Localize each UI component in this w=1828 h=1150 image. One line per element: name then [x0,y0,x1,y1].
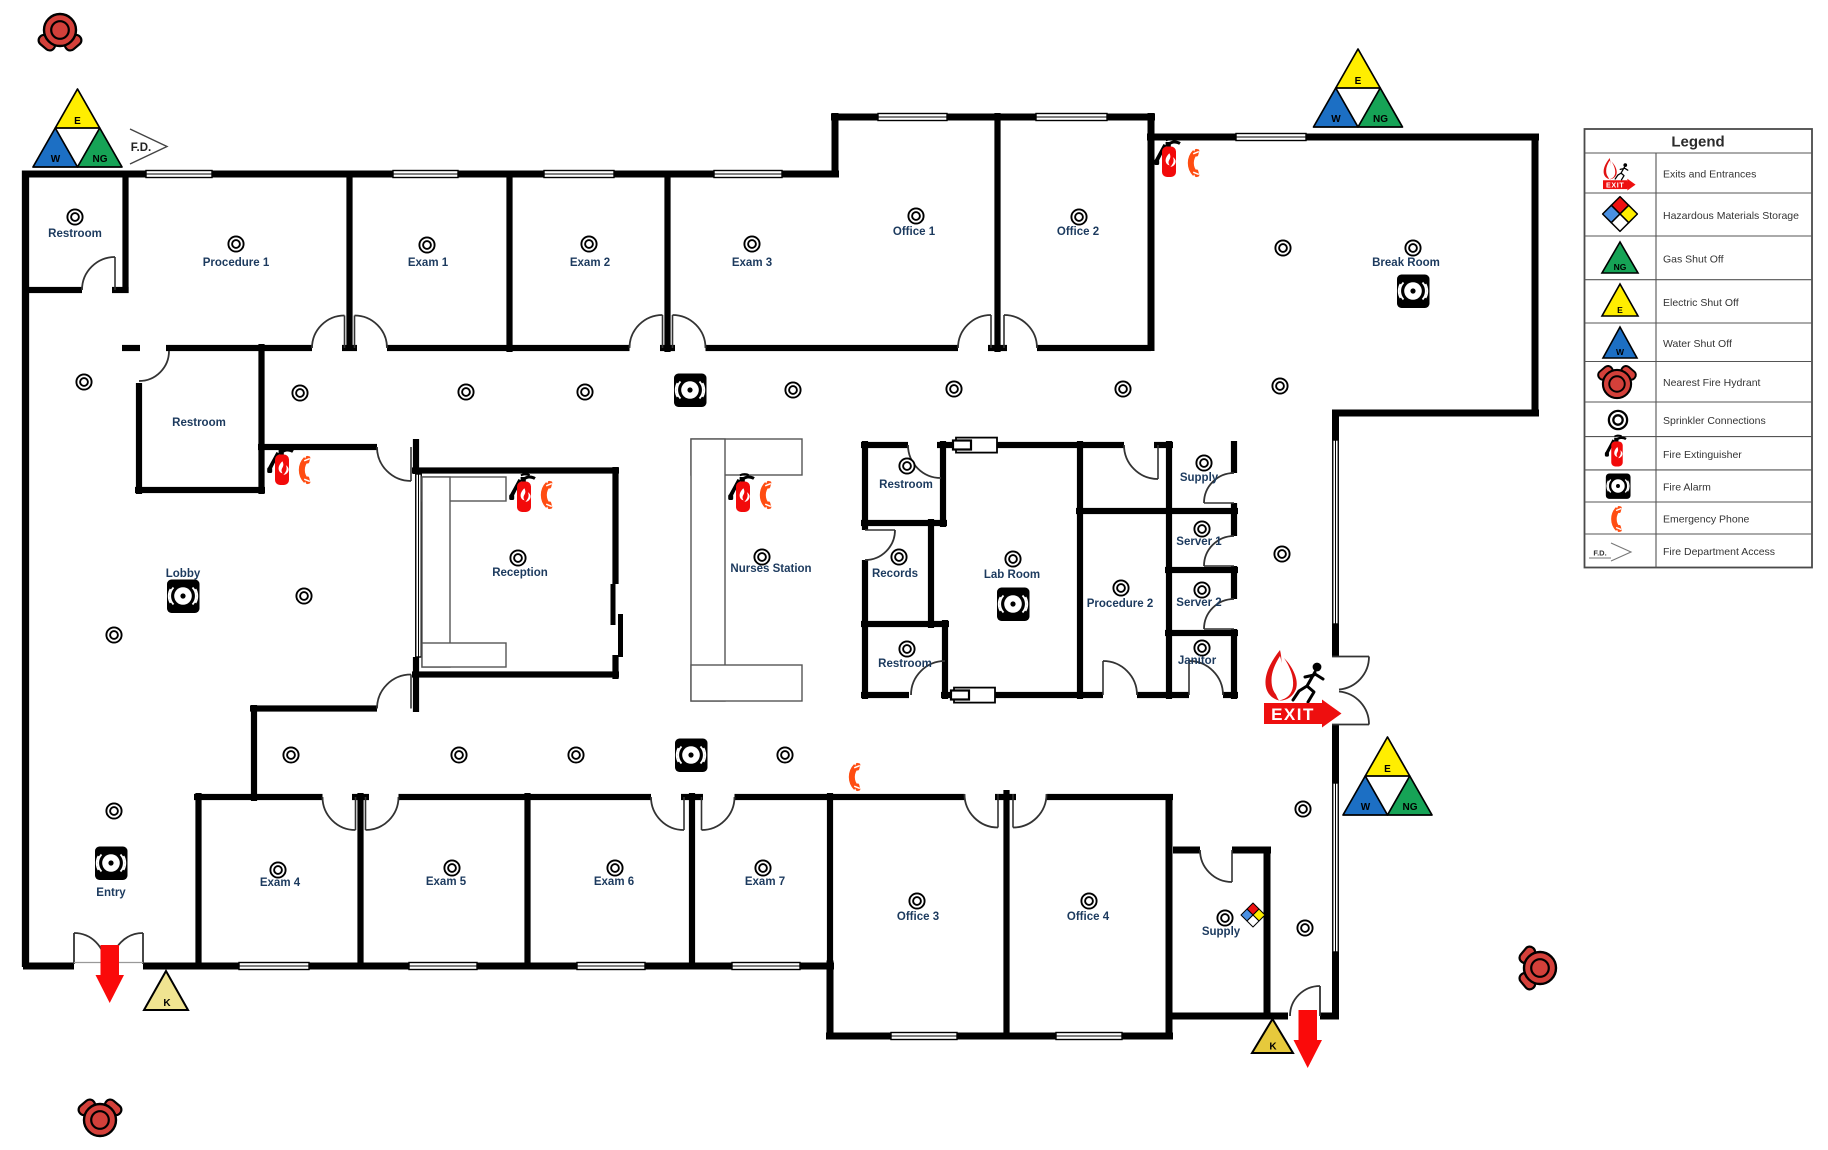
svg-text:Exam 1: Exam 1 [408,257,449,269]
svg-text:K: K [163,998,171,1009]
svg-text:Entry: Entry [96,887,126,899]
svg-text:Break Room: Break Room [1372,257,1440,269]
svg-text:Exam 4: Exam 4 [260,877,301,889]
svg-text:Exits and Entrances: Exits and Entrances [1663,169,1756,181]
svg-text:Records: Records [872,568,918,580]
svg-text:Restroom: Restroom [172,417,226,429]
svg-text:Procedure 2: Procedure 2 [1087,598,1153,610]
svg-text:Legend: Legend [1671,134,1724,151]
svg-text:Supply: Supply [1180,472,1219,484]
svg-text:Gas Shut Off: Gas Shut Off [1663,253,1724,265]
svg-text:Janitor: Janitor [1178,655,1217,667]
svg-text:Nearest Fire Hydrant: Nearest Fire Hydrant [1663,377,1761,389]
svg-text:Restroom: Restroom [878,658,932,670]
svg-text:Exam 7: Exam 7 [745,876,785,888]
svg-text:K: K [1269,1042,1277,1053]
svg-text:W: W [1616,347,1625,357]
svg-text:NG: NG [1614,262,1627,272]
svg-text:Supply: Supply [1202,926,1241,938]
svg-text:F.D.: F.D. [131,142,151,154]
svg-text:Restroom: Restroom [48,228,102,240]
svg-text:E: E [1617,305,1623,315]
svg-text:Water Shut Off: Water Shut Off [1663,338,1732,350]
svg-text:Exam 3: Exam 3 [732,257,772,269]
svg-text:Restroom: Restroom [879,479,933,491]
svg-text:Office 4: Office 4 [1067,911,1110,923]
svg-text:Reception: Reception [492,567,548,579]
svg-text:Exam 2: Exam 2 [570,257,610,269]
svg-text:Nurses Station: Nurses Station [730,563,811,575]
svg-text:Exam 5: Exam 5 [426,876,467,888]
svg-text:Server 2: Server 2 [1176,597,1221,609]
svg-text:Fire Alarm: Fire Alarm [1663,481,1711,493]
svg-text:Office 3: Office 3 [897,911,939,923]
svg-text:Emergency Phone: Emergency Phone [1663,514,1750,526]
svg-text:Office 1: Office 1 [893,226,936,238]
svg-text:Sprinkler Connections: Sprinkler Connections [1663,415,1766,427]
svg-text:Fire Department Access: Fire Department Access [1663,546,1775,558]
svg-text:Hazardous Materials Storage: Hazardous Materials Storage [1663,210,1799,222]
svg-text:Lobby: Lobby [166,568,201,580]
svg-text:Exam 6: Exam 6 [594,876,634,888]
svg-text:Lab Room: Lab Room [984,569,1040,581]
svg-text:Fire Extinguisher: Fire Extinguisher [1663,449,1742,461]
svg-text:F.D.: F.D. [1593,549,1606,558]
svg-text:Server 1: Server 1 [1176,536,1222,548]
svg-text:Electric Shut Off: Electric Shut Off [1663,297,1739,309]
svg-text:Procedure 1: Procedure 1 [203,257,270,269]
svg-text:Office 2: Office 2 [1057,226,1099,238]
